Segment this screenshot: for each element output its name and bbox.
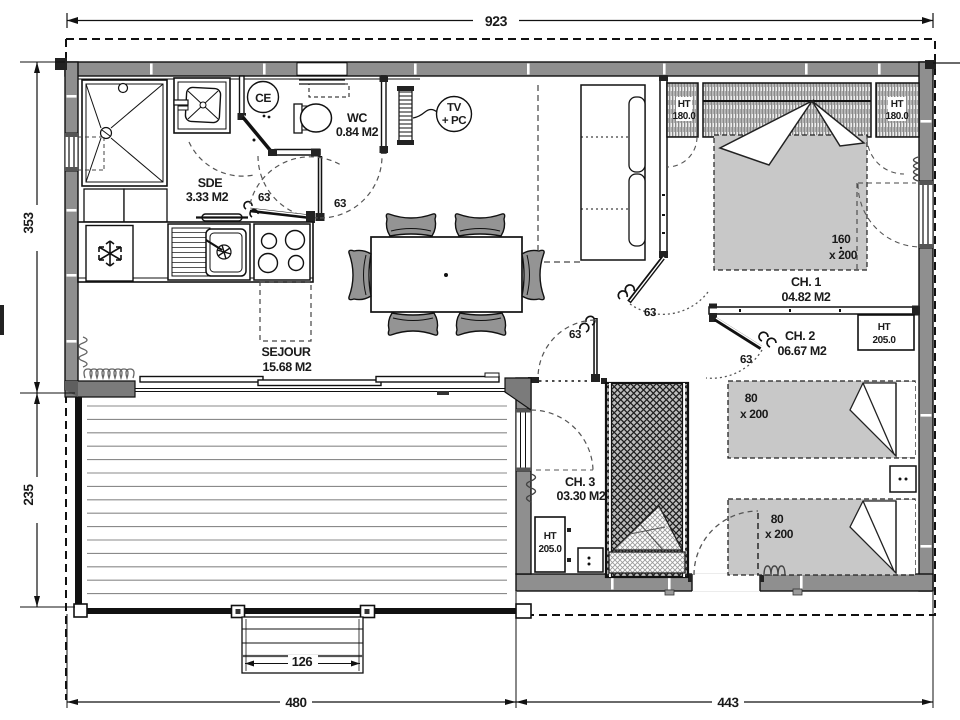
svg-text:80: 80	[745, 391, 758, 405]
svg-text:180.0: 180.0	[672, 111, 696, 122]
svg-text:923: 923	[485, 13, 508, 29]
svg-text:63: 63	[569, 329, 581, 341]
svg-text:CH. 2: CH. 2	[785, 329, 815, 343]
svg-text:WC: WC	[347, 111, 367, 125]
svg-text:SEJOUR: SEJOUR	[261, 345, 310, 359]
svg-text:CH. 3: CH. 3	[565, 475, 595, 489]
svg-text:x 200: x 200	[765, 527, 794, 541]
svg-text:CE: CE	[255, 91, 271, 105]
svg-text:205.0: 205.0	[872, 335, 896, 346]
svg-text:126: 126	[292, 654, 313, 669]
svg-text:+ PC: + PC	[442, 115, 466, 127]
svg-text:353: 353	[21, 211, 36, 233]
svg-text:63: 63	[740, 354, 752, 366]
svg-text:3.33 M2: 3.33 M2	[186, 190, 229, 204]
svg-text:x 200: x 200	[740, 407, 769, 421]
svg-text:HT: HT	[891, 99, 904, 110]
svg-text:443: 443	[717, 695, 739, 710]
svg-text:CH. 1: CH. 1	[791, 275, 821, 289]
svg-text:180.0: 180.0	[885, 111, 909, 122]
svg-text:63: 63	[644, 307, 656, 319]
svg-text:HT: HT	[544, 531, 557, 542]
svg-text:63: 63	[258, 192, 270, 204]
svg-text:80: 80	[771, 512, 784, 526]
svg-text:235: 235	[21, 483, 36, 505]
svg-text:HT: HT	[678, 99, 691, 110]
svg-text:15.68 M2: 15.68 M2	[263, 360, 312, 374]
svg-text:HT: HT	[878, 322, 891, 333]
svg-text:63: 63	[334, 198, 346, 210]
svg-text:480: 480	[285, 695, 306, 710]
svg-text:04.82 M2: 04.82 M2	[782, 290, 831, 304]
svg-text:x 200: x 200	[829, 248, 858, 262]
svg-text:TV: TV	[447, 102, 462, 114]
svg-text:06.67 M2: 06.67 M2	[778, 344, 827, 358]
svg-text:205.0: 205.0	[538, 544, 562, 555]
svg-text:0.84 M2: 0.84 M2	[336, 125, 379, 139]
svg-text:160: 160	[832, 232, 852, 246]
svg-text:SDE: SDE	[198, 176, 223, 190]
svg-text:03.30 M2: 03.30 M2	[557, 489, 606, 503]
